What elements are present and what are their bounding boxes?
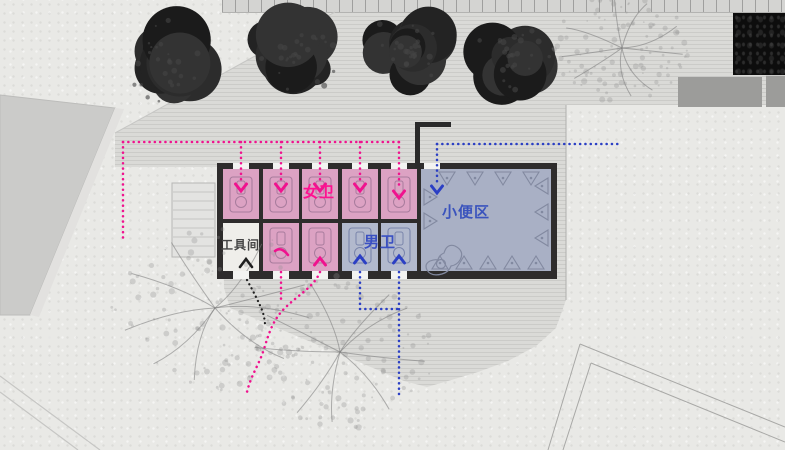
dark-tree-canopies [132, 3, 557, 105]
urinal-zone-label: 小便区 [442, 205, 490, 220]
male-zone-label: 男卫 [364, 235, 396, 250]
female-arrow-up-icon [315, 258, 326, 265]
entry-screen-wall [415, 122, 451, 168]
service-flow-lines [240, 259, 265, 326]
female-flow-lines [123, 142, 405, 392]
concrete-slab [0, 95, 115, 315]
floor-drain [437, 260, 446, 269]
site-plan-canvas: 女卫 小便区 男卫 工具间 [0, 0, 785, 450]
bottom-right-plaza-outline [548, 344, 785, 450]
male-arrow-up-icon [355, 256, 405, 263]
plan-linework-overlay [0, 0, 785, 450]
female-zone-label: 女卫 [303, 185, 335, 200]
service-flow-curve [247, 280, 265, 326]
tool-room-label: 工具间 [221, 239, 260, 251]
male-flow-stalls [360, 272, 399, 396]
bottom-left-path-lines [0, 376, 100, 450]
bench-steps [172, 183, 215, 257]
male-arrow-down-icon [432, 186, 443, 193]
door-openings [233, 163, 440, 279]
